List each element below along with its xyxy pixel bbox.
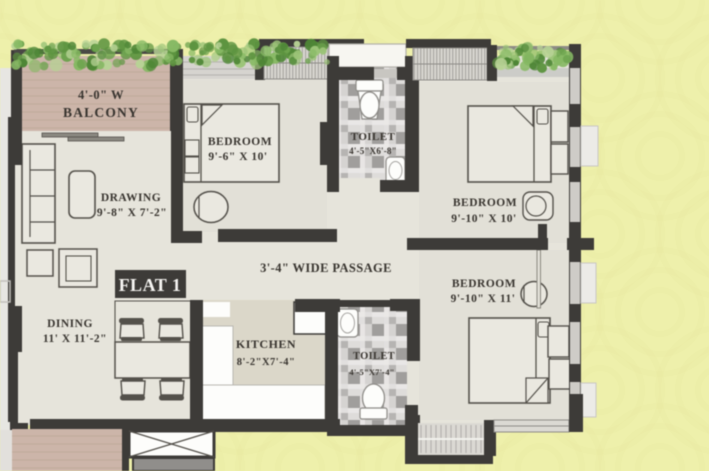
svg-text:BEDROOM: BEDROOM: [208, 136, 272, 148]
svg-text:BEDROOM: BEDROOM: [452, 278, 516, 290]
svg-text:4'-5"X7'-4": 4'-5"X7'-4": [349, 367, 394, 377]
svg-text:FLAT 1: FLAT 1: [119, 275, 182, 295]
svg-text:DINING: DINING: [47, 318, 93, 330]
svg-text:9'-10" X 11': 9'-10" X 11': [451, 293, 516, 305]
svg-text:9'-8" X 7'-2": 9'-8" X 7'-2": [97, 207, 167, 219]
svg-text:9'-10" X 10': 9'-10" X 10': [451, 213, 516, 225]
svg-text:8'-2"X7'-4": 8'-2"X7'-4": [237, 357, 296, 368]
svg-text:BEDROOM: BEDROOM: [453, 197, 517, 209]
svg-text:BALCONY: BALCONY: [63, 105, 139, 120]
svg-text:4'-0" W: 4'-0" W: [78, 88, 124, 102]
svg-text:DRAWING: DRAWING: [101, 192, 161, 204]
svg-text:KITCHEN: KITCHEN: [236, 337, 296, 351]
svg-text:9'-6" X 10': 9'-6" X 10': [208, 151, 267, 163]
svg-text:TOILET: TOILET: [353, 351, 395, 362]
svg-text:TOILET: TOILET: [351, 131, 396, 143]
svg-text:11' X 11'-2": 11' X 11'-2": [43, 333, 107, 345]
svg-text:4'-5"X6'-8": 4'-5"X6'-8": [349, 146, 397, 156]
svg-text:3'-4" WIDE PASSAGE: 3'-4" WIDE PASSAGE: [260, 261, 392, 275]
